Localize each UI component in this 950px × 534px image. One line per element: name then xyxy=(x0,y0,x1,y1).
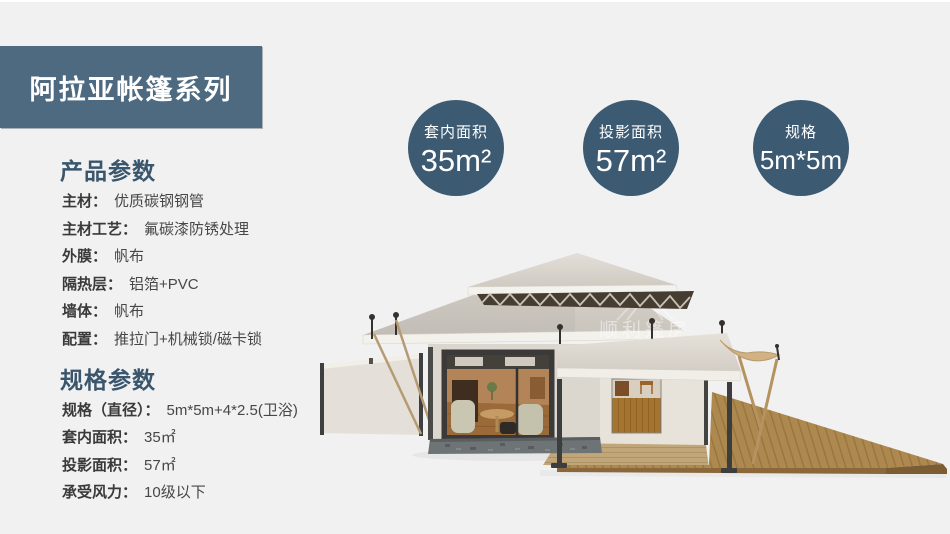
door-opening xyxy=(612,379,661,433)
stat-circle-projection-area: 投影面积 57m² xyxy=(583,100,679,196)
tent-illustration: 顺利篷房 WELL TENT xyxy=(300,237,950,532)
stat-circle-size: 规格 5m*5m xyxy=(753,100,849,196)
window-interior xyxy=(447,355,549,435)
page: 阿拉亚帐篷系列 套内面积 35m² 投影面积 57m² 规格 5m*5m 产品参… xyxy=(0,0,950,534)
param-row-material-craft: 主材工艺：氟碳漆防锈处理 xyxy=(62,222,400,238)
stat-label: 投影面积 xyxy=(599,121,663,142)
panorama-window xyxy=(443,351,553,439)
series-title-banner: 阿拉亚帐篷系列 xyxy=(0,46,262,128)
stat-value: 35m² xyxy=(421,145,492,176)
stat-value: 5m*5m xyxy=(760,145,842,176)
stat-label: 套内面积 xyxy=(424,121,488,142)
series-title: 阿拉亚帐篷系列 xyxy=(30,68,233,107)
side-screen-wall xyxy=(320,353,423,436)
param-row-material: 主材：优质碳钢钢管 xyxy=(62,194,400,210)
stat-label: 规格 xyxy=(785,121,817,142)
stat-circle-inner-area: 套内面积 35m² xyxy=(408,100,504,196)
stat-value: 57m² xyxy=(596,145,667,176)
section-heading-product-params: 产品参数 xyxy=(60,159,400,184)
top-roof xyxy=(468,253,694,309)
stone-base xyxy=(428,437,602,454)
